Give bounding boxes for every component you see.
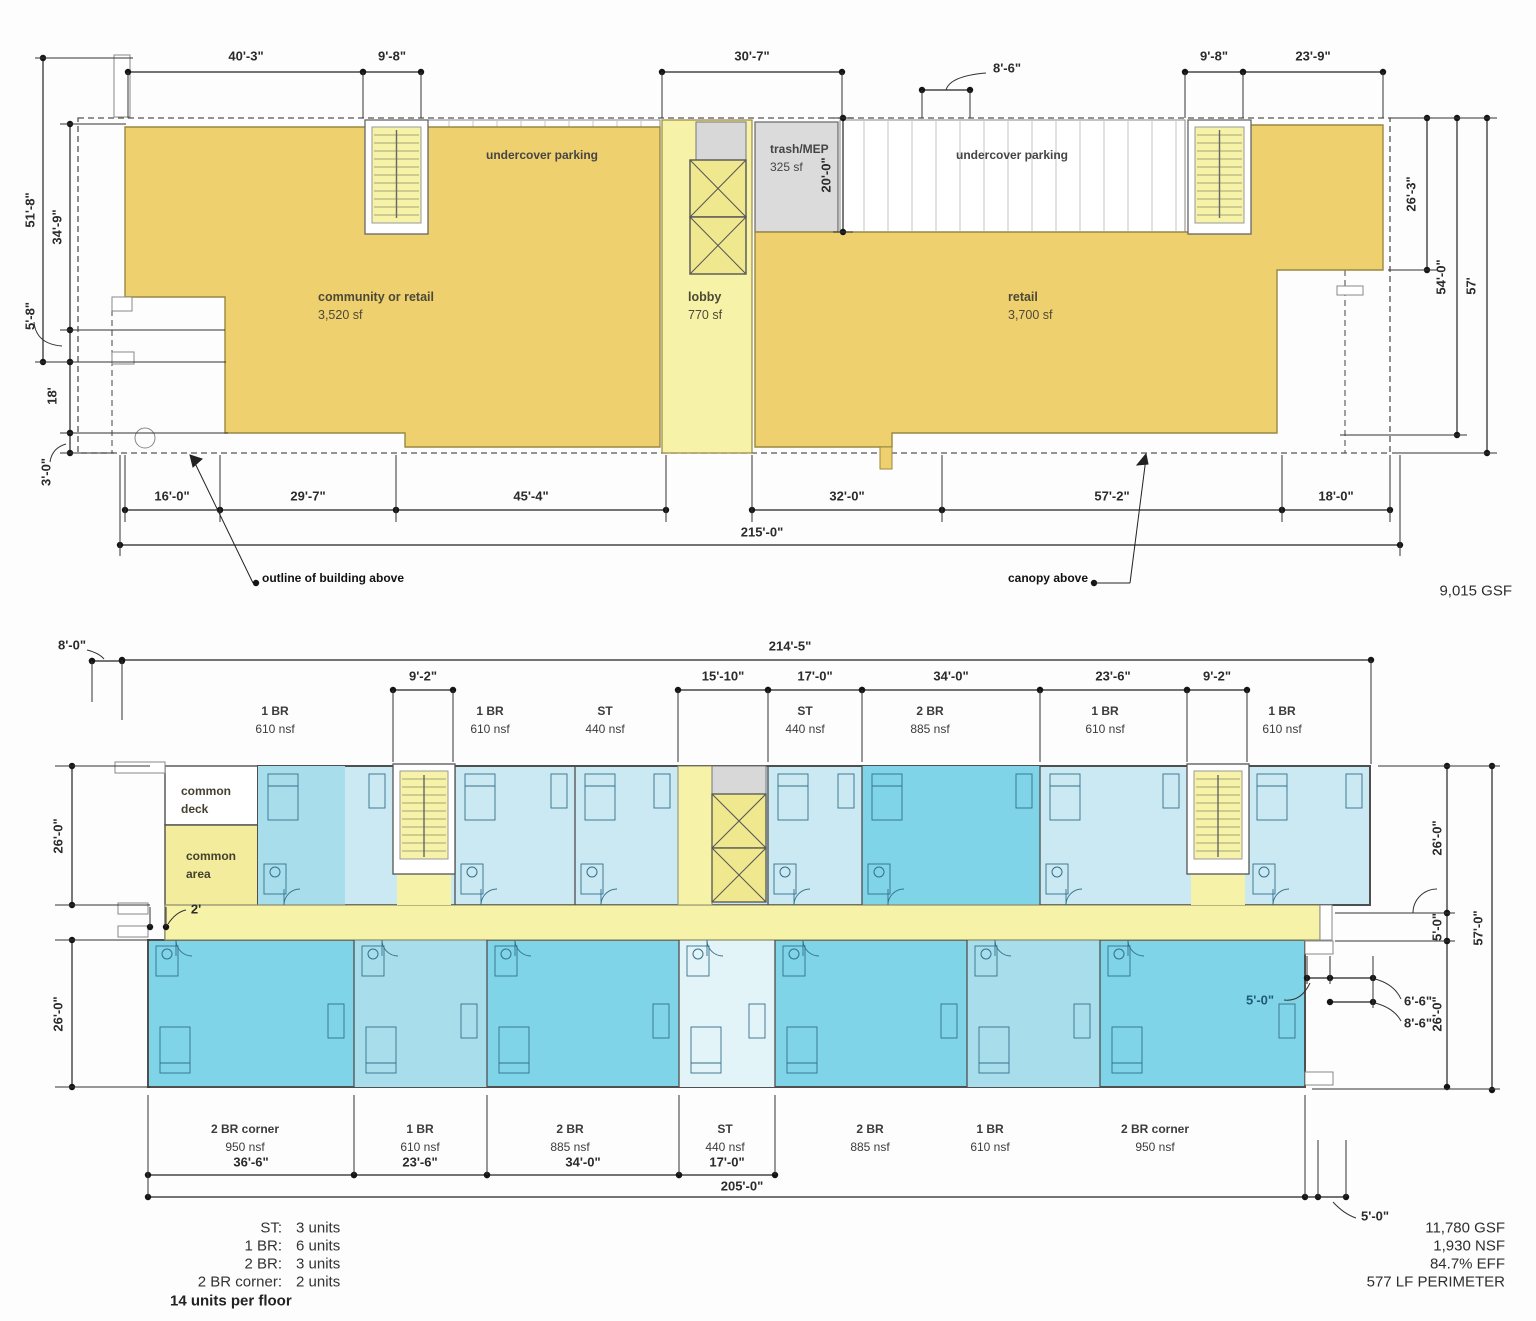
floor-plan-linework [0,0,1536,1321]
architectural-drawing-page: 40'-3"9'-8"30'-7"8'-6"9'-8"23'-9"51'-8"3… [0,0,1536,1321]
ground-floor-plan [78,55,1390,469]
upper-floor-plan [115,762,1370,1087]
